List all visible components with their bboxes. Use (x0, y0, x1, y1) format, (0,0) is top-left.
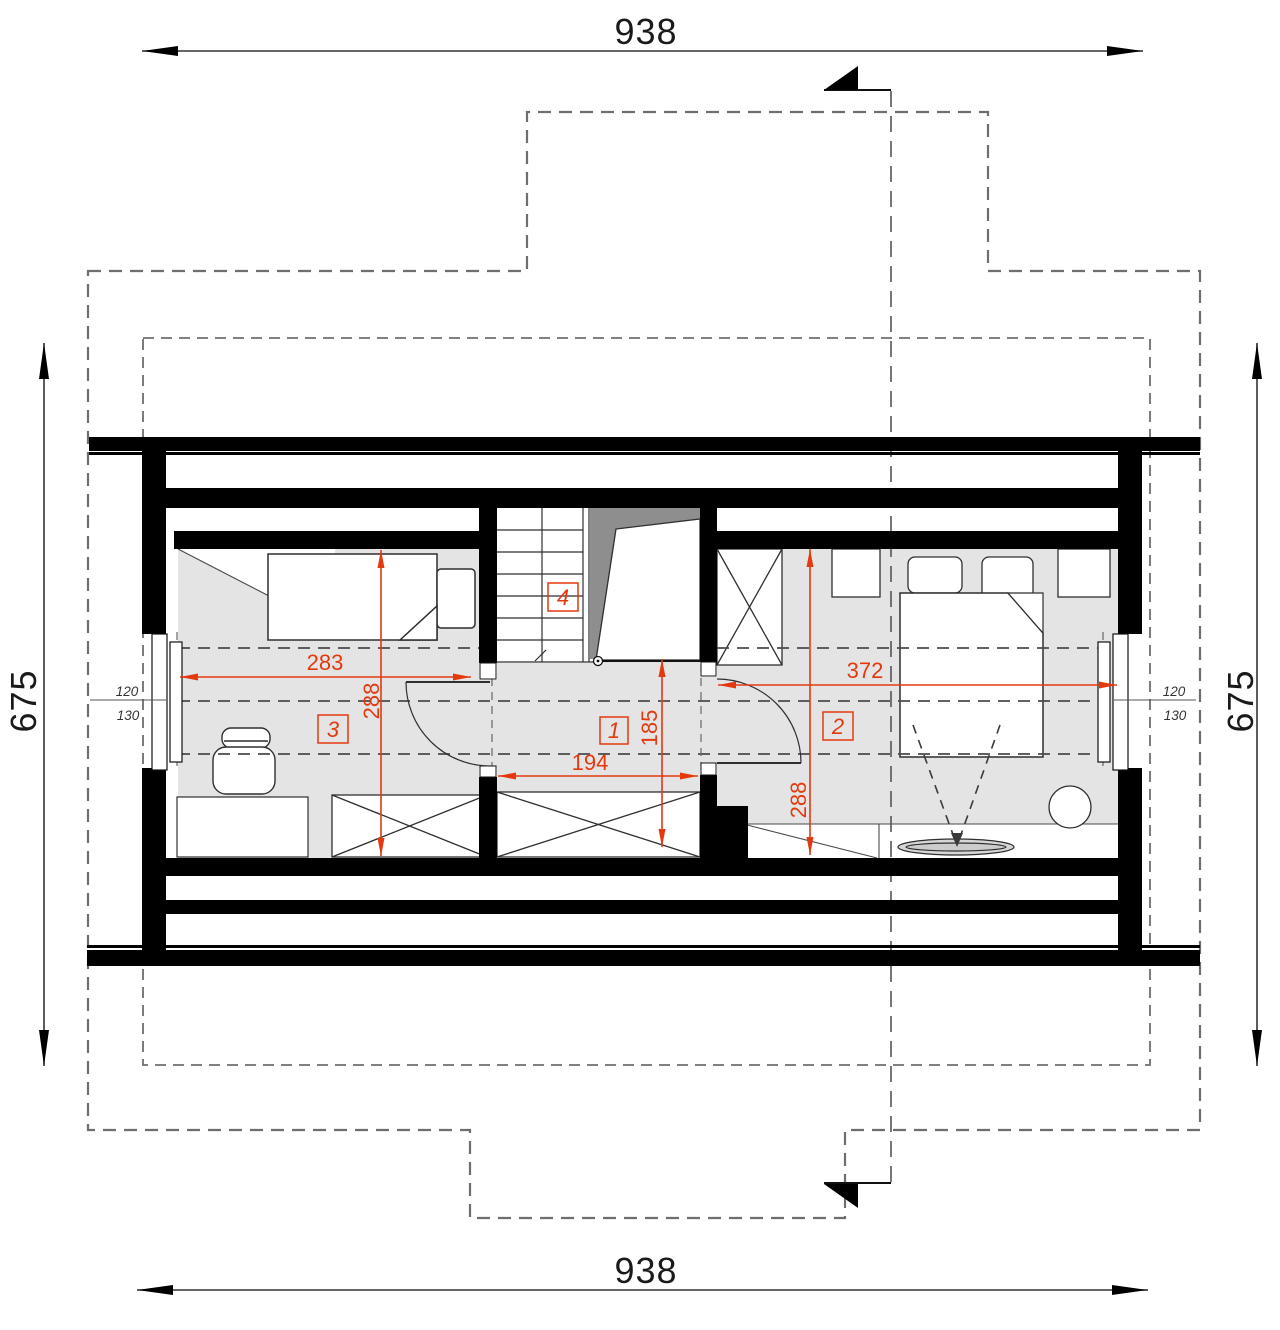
dim-bottom-value: 938 (614, 1250, 677, 1291)
room2-depth-value: 288 (786, 782, 811, 819)
stairs-number: 4 (557, 585, 569, 610)
staircase (497, 508, 700, 666)
dimension-bottom: 938 (137, 1250, 1148, 1295)
hall-closet (497, 792, 700, 857)
attic-floor-plan: 938 938 675 675 120 130 120 130 283 (0, 0, 1280, 1330)
height-right-lower: 130 (1164, 708, 1187, 723)
hall-depth-value: 185 (637, 710, 662, 747)
room2-width-value: 372 (847, 658, 884, 683)
desk (177, 797, 308, 857)
room3-number: 3 (327, 717, 340, 742)
hall-width-value: 194 (572, 750, 609, 775)
window-left (152, 634, 182, 770)
height-left-upper: 120 (116, 684, 139, 699)
partition-room3 (479, 508, 497, 663)
room3-depth-value: 288 (359, 683, 384, 720)
dimension-right: 675 (1220, 343, 1262, 1066)
nightstand-left (832, 549, 880, 597)
height-left-lower: 130 (117, 708, 140, 723)
window-right (1098, 634, 1128, 770)
height-right-upper: 120 (1163, 684, 1186, 699)
dim-left-value: 675 (3, 669, 44, 732)
office-chair (213, 728, 275, 794)
section-arrow-bottom (824, 1184, 858, 1208)
pouf (1049, 786, 1091, 828)
dimension-left: 675 (3, 343, 49, 1066)
floor-plan-drawing: 938 938 675 675 120 130 120 130 283 (0, 0, 1280, 1330)
partition-room2 (700, 508, 717, 662)
section-arrow-top (824, 66, 858, 90)
doorway-room2-floor (700, 677, 717, 765)
chimney (716, 806, 748, 858)
hall-number: 1 (608, 718, 620, 743)
nightstand-right (1058, 549, 1110, 597)
dimension-top: 938 (142, 11, 1143, 56)
wardrobe-room3 (332, 795, 487, 857)
room3-width-value: 283 (307, 650, 344, 675)
room2-number: 2 (831, 714, 844, 739)
dim-right-value: 675 (1220, 669, 1261, 732)
dim-top-value: 938 (614, 11, 677, 52)
double-bed (900, 593, 1043, 757)
